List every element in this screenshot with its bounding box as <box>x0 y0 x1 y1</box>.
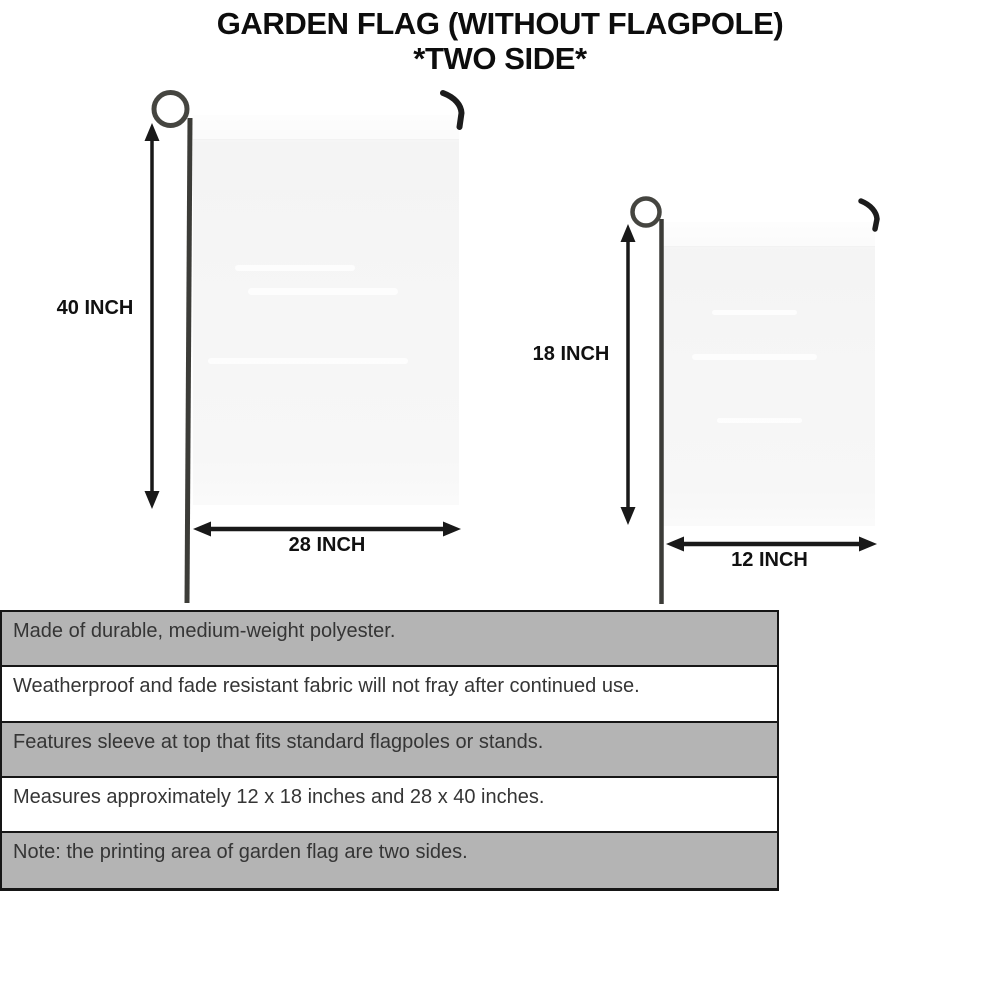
feature-text: Weatherproof and fade resistant fabric w… <box>13 675 640 697</box>
pole-large <box>187 118 190 603</box>
hook-small <box>861 201 877 229</box>
height-label-large: 40 INCH <box>50 297 140 320</box>
feature-row: Weatherproof and fade resistant fabric w… <box>2 667 777 723</box>
features-table: Made of durable, medium-weight polyester… <box>0 610 779 891</box>
width-label-large: 28 INCH <box>194 534 460 557</box>
pole-loop-small <box>633 199 660 226</box>
height-arrow-small <box>621 224 636 525</box>
width-label-small: 12 INCH <box>663 549 876 572</box>
feature-row: Note: the printing area of garden flag a… <box>2 833 777 888</box>
feature-row: Measures approximately 12 x 18 inches an… <box>2 778 777 833</box>
feature-text: Note: the printing area of garden flag a… <box>13 841 468 863</box>
feature-row: Made of durable, medium-weight polyester… <box>2 612 777 667</box>
height-label-small: 18 INCH <box>526 343 616 366</box>
feature-text: Made of durable, medium-weight polyester… <box>13 620 395 642</box>
feature-text: Measures approximately 12 x 18 inches an… <box>13 786 544 808</box>
hook-large <box>443 93 462 127</box>
pole-loop-large <box>154 93 187 126</box>
feature-row: Features sleeve at top that fits standar… <box>2 723 777 778</box>
garden-flag-infographic: GARDEN FLAG (WITHOUT FLAGPOLE) *TWO SIDE… <box>0 0 1000 1000</box>
feature-text: Features sleeve at top that fits standar… <box>13 731 543 753</box>
height-arrow-large <box>145 123 160 509</box>
